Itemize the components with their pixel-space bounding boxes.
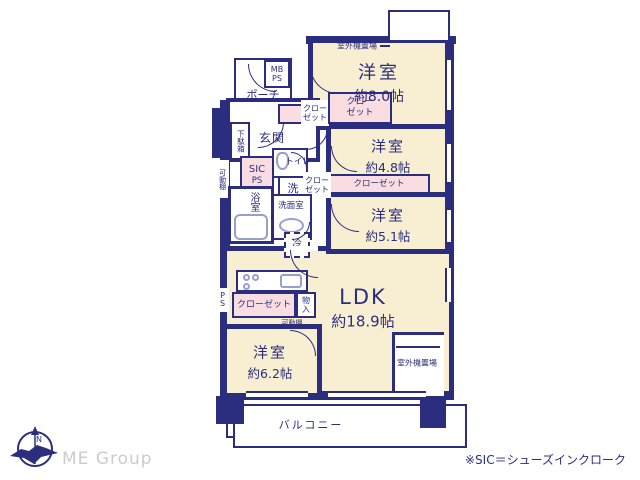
closet-hall-upper-label: クローゼット [301,100,329,126]
stove-burner-3 [243,283,250,290]
kitchen-sink [280,274,302,288]
storage-label: 物入 [302,296,311,315]
bathroom-label-wrap: 浴室 [246,192,261,216]
closet-ldk-label: クローゼット [237,300,291,311]
window-right-room48 [445,144,453,182]
closet-ldk: クローゼット [232,292,296,318]
room62-name: 洋室 [253,344,287,361]
shoe-cabinet-label: 下駄箱 [236,130,245,153]
outdoor-unit-top-leader [380,45,390,47]
room51-size: 約5.1帖 [366,230,411,244]
shoe-cabinet: 下駄箱 [230,122,250,160]
window-balcony-ldk [328,391,426,399]
stove-burner-2 [252,274,259,281]
pipe-space-label: PS [219,292,226,309]
stove-burner-1 [243,274,250,281]
room8-name: 洋室 [358,64,400,85]
outdoor-unit-notch-tick [396,346,440,348]
storage-monoire: 物入 [296,292,316,318]
logo-me-group: ME Group [62,449,153,469]
door-arc-hall [306,128,328,150]
room62-size: 約6.2帖 [248,367,293,381]
ldk-size: 約18.9帖 [331,313,394,330]
outdoor-unit-bottom-label: 室外機置場 [397,358,437,367]
wall-left-chunk [212,108,220,158]
outdoor-unit-notch-top [388,10,450,42]
svg-text:N: N [36,435,42,444]
bathtub [234,214,268,240]
room48-size: 約4.8帖 [366,161,411,175]
compass-north-icon: N [8,418,60,476]
room48-name: 洋室 [371,138,405,155]
window-right-room8 [445,60,453,110]
sic-ps-label: PS [252,176,263,186]
movable-shelf-ldk: 可動棚 [282,319,303,327]
balcony-label: バルコニー [279,420,344,433]
floorplan-canvas: バルコニー クローゼット 室外機置場 室外機置場 MB PS ポーチ 玄関 下駄… [0,0,640,480]
sic-label: SIC [249,164,265,175]
closet-room51-label: クローゼット [353,179,404,189]
washroom-label: 洗面室 [278,202,304,212]
pillar-bottom-right [420,400,446,428]
pipe-space-left: PS [216,288,229,312]
sic-note: ※SIC＝シューズインクローク [465,451,626,468]
window-balcony-room62 [246,391,308,399]
outdoor-unit-top-label: 室外機置場 [337,41,377,50]
window-right-room51 [445,210,453,242]
closet-room51: クローゼット [328,174,430,194]
room51-name: 洋室 [371,207,405,224]
window-right-ldk [445,268,453,302]
room8-size: 約8.0帖 [354,89,404,105]
pillar-bottom-left [216,396,244,424]
bathroom-label: 浴室 [246,192,261,212]
ldk-name: LDK [339,285,387,309]
